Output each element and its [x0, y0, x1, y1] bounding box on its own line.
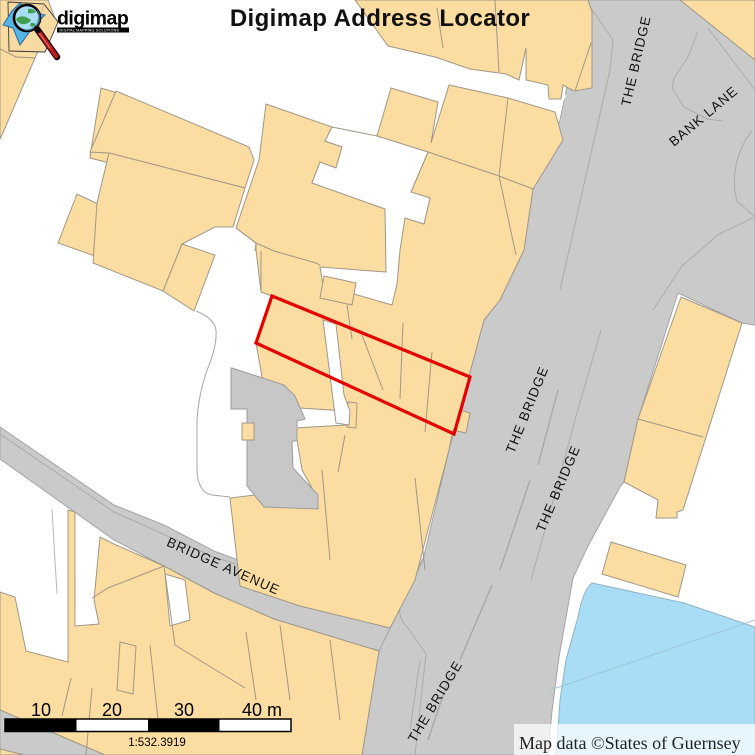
svg-text:40 m: 40 m	[242, 700, 282, 720]
svg-text:20: 20	[102, 700, 122, 720]
svg-text:DIGITAL MAPPING SOLUTIONS: DIGITAL MAPPING SOLUTIONS	[60, 29, 120, 33]
svg-text:Digimap Address Locator: Digimap Address Locator	[230, 5, 530, 32]
svg-text:1:532.3919: 1:532.3919	[128, 737, 186, 749]
svg-text:30: 30	[174, 700, 194, 720]
svg-text:10: 10	[31, 700, 51, 720]
svg-text:digimap: digimap	[57, 8, 129, 30]
svg-text:Map data ©States of Guernsey: Map data ©States of Guernsey	[519, 733, 741, 753]
